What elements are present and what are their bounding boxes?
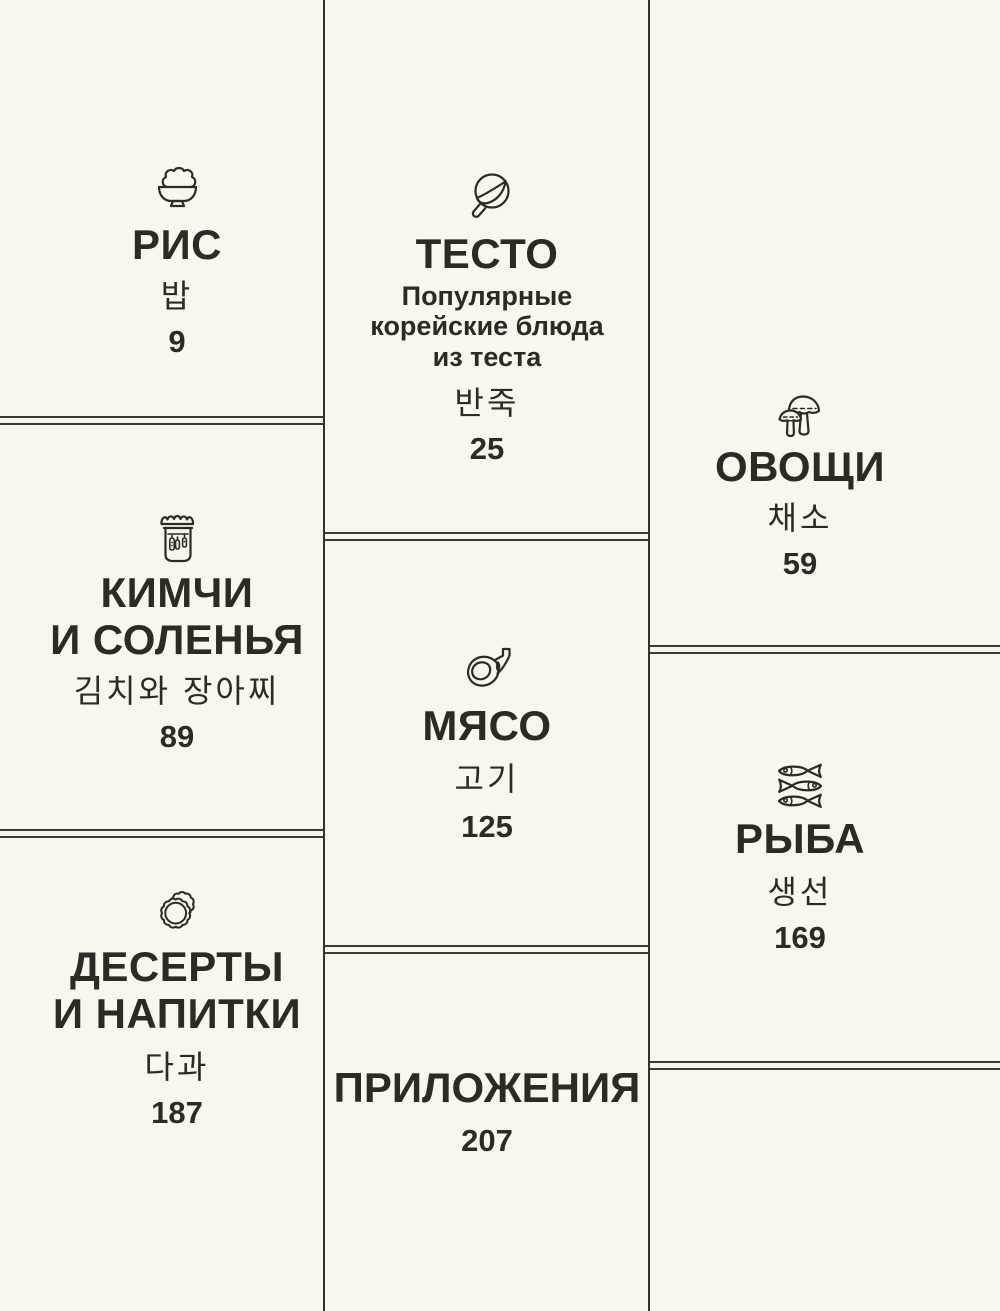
pickle-jar-icon [156, 511, 198, 563]
section-page-number: 187 [151, 1095, 203, 1131]
meat-icon [461, 646, 513, 696]
toc-section-meat: МЯСО 고기 125 [337, 646, 637, 845]
book-toc-page: РИС 밥 9 ТЕСТО Популярные корейские блюда… [0, 0, 1000, 1311]
section-page-number: 89 [160, 719, 194, 755]
toc-section-rice: РИС 밥 9 [27, 163, 327, 360]
section-subtitle: Популярные корейские блюда из теста [370, 281, 603, 372]
row-divider-double-line [0, 416, 323, 425]
row-divider-double-line [650, 1061, 1000, 1070]
frying-pan-icon [461, 170, 513, 224]
row-divider-double-line [325, 945, 648, 954]
column-divider-line-right [648, 0, 650, 1311]
mushrooms-icon [777, 393, 823, 437]
toc-section-fish: РЫБА 생선 169 [650, 763, 950, 956]
section-korean-label: 생선 [768, 875, 833, 910]
section-page-number: 125 [461, 809, 513, 845]
section-title: РЫБА [735, 815, 865, 862]
toc-section-vegetables: ОВОЩИ 채소 59 [650, 393, 950, 582]
section-title: МЯСО [422, 702, 551, 749]
section-title: ДЕСЕРТЫ И НАПИТКИ [53, 943, 301, 1037]
section-page-number: 169 [774, 920, 826, 956]
toc-section-desserts: ДЕСЕРТЫ И НАПИТКИ 다과 187 [27, 886, 327, 1131]
section-title: ОВОЩИ [715, 443, 885, 490]
toc-section-kimchi: КИМЧИ И СОЛЕНЬЯ 김치와 장아찌 89 [27, 511, 327, 755]
section-page-number: 207 [461, 1123, 513, 1159]
row-divider-double-line [325, 532, 648, 541]
section-korean-label: 밥 [161, 279, 193, 314]
toc-section-dough: ТЕСТО Популярные корейские блюда из тест… [337, 170, 637, 467]
section-title: КИМЧИ И СОЛЕНЬЯ [50, 569, 304, 663]
fish-stack-icon [776, 763, 824, 809]
section-title: ПРИЛОЖЕНИЯ [334, 1064, 641, 1111]
section-page-number: 59 [783, 546, 817, 582]
section-title: ТЕСТО [416, 230, 559, 277]
cookies-icon [154, 886, 201, 933]
section-korean-label: 다과 [145, 1050, 210, 1085]
section-page-number: 9 [168, 324, 185, 360]
row-divider-double-line [0, 829, 323, 838]
row-divider-double-line [650, 645, 1000, 654]
section-korean-label: 반죽 [455, 386, 520, 421]
section-title: РИС [132, 221, 222, 268]
section-korean-label: 고기 [455, 762, 520, 797]
toc-section-appendix: ПРИЛОЖЕНИЯ 207 [337, 1058, 637, 1159]
section-korean-label: 채소 [768, 501, 833, 536]
section-korean-label: 김치와 장아찌 [74, 674, 281, 709]
section-page-number: 25 [470, 431, 504, 467]
rice-bowl-icon [153, 163, 202, 215]
